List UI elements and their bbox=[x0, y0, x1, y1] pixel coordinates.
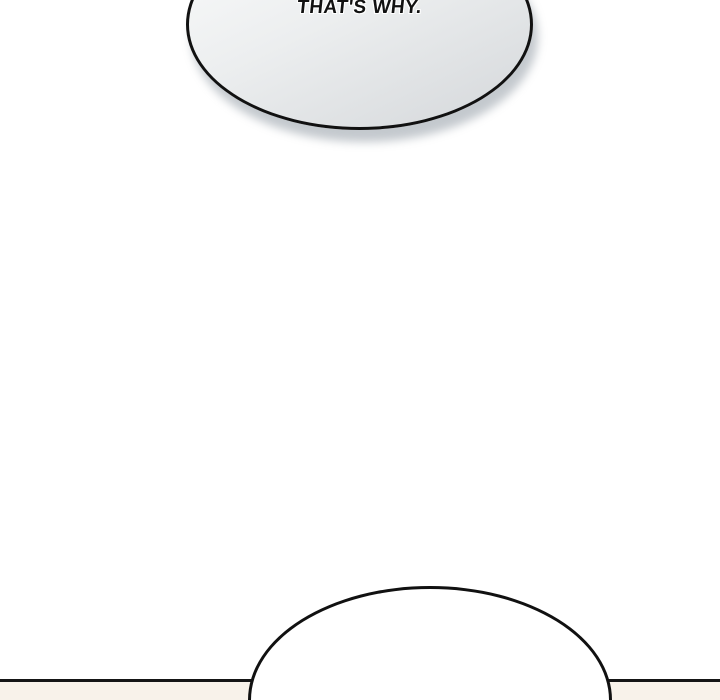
comic-panel: THAT'S WHY. bbox=[0, 0, 720, 700]
speech-bubble-top: THAT'S WHY. bbox=[186, 0, 533, 130]
speech-bubble-top-text: THAT'S WHY. bbox=[188, 0, 531, 18]
speech-bubble-bottom bbox=[248, 586, 612, 700]
